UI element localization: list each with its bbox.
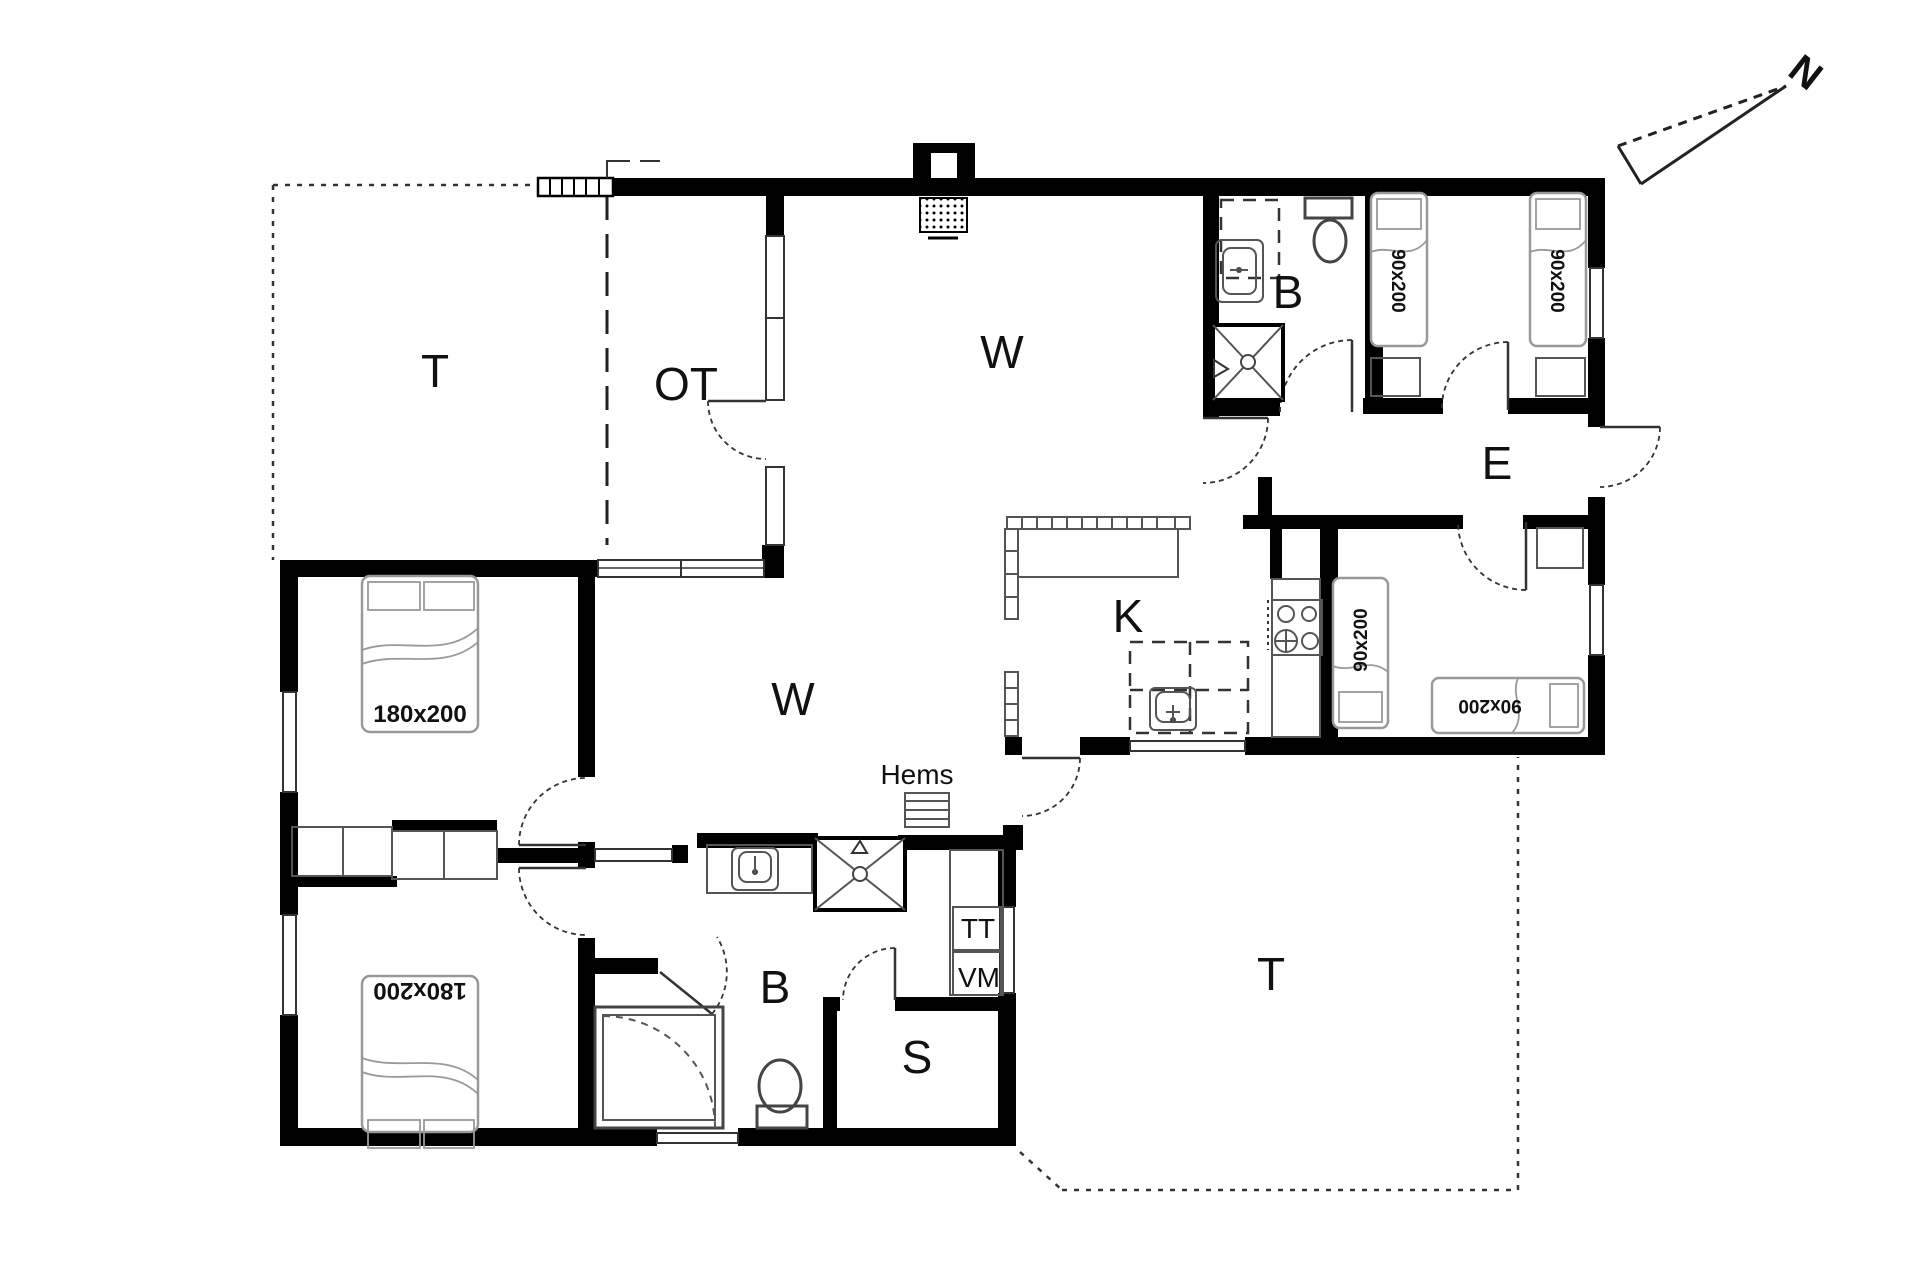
label-dryer: TT xyxy=(961,913,995,944)
window xyxy=(1590,585,1603,655)
window xyxy=(283,915,296,1015)
kitchen-island xyxy=(1130,642,1248,733)
loft-ladder-icon xyxy=(905,793,949,827)
ot-window xyxy=(766,467,784,545)
bed-size-label: 180x200 xyxy=(373,701,466,728)
shower xyxy=(1213,325,1283,400)
door-bedroom-mid-right xyxy=(1458,522,1526,590)
wardrobes xyxy=(292,827,497,879)
door-bath-top xyxy=(1280,340,1352,412)
pergola-strip xyxy=(538,178,613,196)
label-entry: E xyxy=(1482,437,1513,489)
toilet xyxy=(1305,198,1352,262)
floorplan-canvas: N T OT W B E K W Hems B S TT VM T 180x20… xyxy=(0,0,1920,1280)
stove xyxy=(1268,579,1322,737)
label-loft: Hems xyxy=(880,759,953,790)
label-living: W xyxy=(980,326,1024,378)
kitchen-window xyxy=(1130,741,1245,751)
bed-size-label: 90x200 xyxy=(1351,608,1372,671)
corner-shower-cabin xyxy=(595,1007,723,1128)
toilet xyxy=(757,1060,807,1128)
threshold xyxy=(595,849,672,861)
desk xyxy=(1537,528,1583,568)
window xyxy=(283,692,296,792)
label-kitchen: K xyxy=(1113,590,1144,642)
window xyxy=(657,1133,738,1143)
bar-counter xyxy=(1005,517,1190,736)
door-living-hall xyxy=(1203,418,1268,483)
door-bath-bottom xyxy=(660,937,727,1014)
vanity-sink xyxy=(707,845,812,893)
label-storage: S xyxy=(902,1031,933,1083)
terrace-bottom-boundary xyxy=(1020,1152,1062,1190)
door-storage xyxy=(843,948,895,1000)
bed-size-label: 90x200 xyxy=(1458,695,1521,716)
door-bedroom-lower-left xyxy=(519,868,586,935)
label-bath-bottom: B xyxy=(760,961,791,1013)
compass-north-label: N xyxy=(1780,47,1830,99)
sink xyxy=(1216,240,1263,302)
compass-north-arrow: N xyxy=(1618,47,1830,184)
bed-size-label: 90x200 xyxy=(1546,249,1567,312)
label-washer: VM xyxy=(958,962,1000,993)
bed-size-label: 90x200 xyxy=(1387,249,1408,312)
wall xyxy=(607,178,1605,196)
window xyxy=(1590,268,1603,338)
label-living-mid: W xyxy=(771,673,815,725)
nightstand xyxy=(1536,358,1585,396)
label-bath-top: B xyxy=(1273,266,1304,318)
shower xyxy=(815,838,905,910)
fireplace-icon xyxy=(920,198,967,238)
corner-mark xyxy=(607,161,630,178)
door-terrace xyxy=(1022,758,1080,816)
door-bedroom-top-right xyxy=(1442,342,1508,410)
door-bedroom-upper-left xyxy=(519,778,586,845)
bed-size-label: 180x200 xyxy=(373,977,466,1004)
label-covered-terrace: OT xyxy=(654,358,718,410)
label-terrace-top: T xyxy=(421,345,449,397)
label-terrace-bottom: T xyxy=(1257,948,1285,1000)
door-entrance xyxy=(1600,427,1660,487)
floorplan-drawing: N T OT W B E K W Hems B S TT VM T 180x20… xyxy=(0,0,1920,1280)
chimney-flue xyxy=(931,153,957,178)
